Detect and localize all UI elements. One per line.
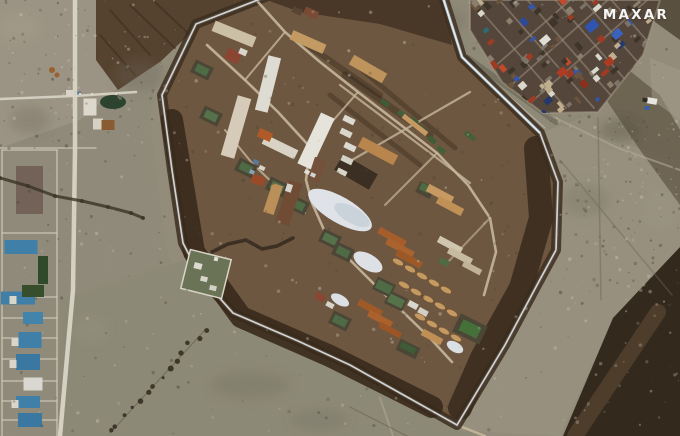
speckle — [271, 121, 273, 123]
speckle — [647, 173, 648, 174]
speckle — [30, 288, 32, 290]
speckle — [461, 151, 463, 153]
speckle — [114, 364, 116, 366]
speckle — [133, 155, 135, 157]
speckle — [338, 318, 340, 320]
speckle — [184, 216, 185, 217]
speckle — [429, 410, 433, 414]
speckle — [52, 141, 53, 142]
speckle — [428, 5, 431, 8]
tree — [150, 384, 155, 389]
speckle — [139, 12, 141, 14]
speckle — [8, 62, 10, 64]
speckle — [411, 43, 415, 47]
speckle — [282, 232, 284, 234]
speckle — [145, 40, 147, 42]
speckle — [601, 245, 604, 248]
speckle — [551, 154, 553, 156]
speckle — [107, 131, 109, 133]
speckle — [311, 10, 314, 13]
tree — [168, 365, 174, 371]
speckle — [663, 300, 665, 302]
speckle — [333, 244, 334, 245]
speckle — [565, 180, 567, 182]
speckle — [630, 193, 632, 195]
speckle — [278, 408, 280, 410]
speckle — [507, 124, 510, 127]
speckle — [659, 244, 662, 247]
speckle — [577, 21, 579, 23]
speckle — [607, 58, 609, 60]
speckle — [561, 63, 562, 64]
speckle — [38, 68, 41, 71]
speckle — [316, 103, 318, 105]
speckle — [378, 386, 380, 388]
speckle — [57, 2, 59, 4]
field-blotch — [600, 118, 640, 142]
speckle — [587, 405, 588, 406]
speckle — [287, 410, 291, 414]
speckle — [436, 127, 439, 130]
speckle — [113, 52, 115, 54]
speckle — [518, 94, 519, 95]
speckle — [77, 8, 78, 9]
speckle — [625, 180, 627, 182]
speckle — [235, 1, 236, 2]
speckle — [16, 201, 19, 204]
speckle — [598, 131, 600, 133]
speckle — [302, 87, 304, 89]
barn — [16, 396, 40, 408]
speckle — [541, 4, 543, 6]
speckle — [611, 139, 613, 141]
speckle — [341, 403, 344, 406]
speckle — [550, 242, 552, 244]
speckle — [179, 143, 181, 145]
speckle — [125, 320, 128, 323]
speckle — [406, 290, 408, 292]
speckle — [549, 62, 551, 64]
speckle — [523, 193, 525, 195]
bush — [106, 205, 110, 209]
speckle — [161, 66, 163, 68]
speckle — [249, 147, 251, 149]
speckle — [629, 153, 631, 155]
speckle — [425, 93, 426, 94]
speckle — [653, 64, 655, 66]
speckle — [199, 232, 201, 234]
speckle — [39, 9, 42, 12]
speckle — [576, 286, 577, 287]
speckle — [639, 192, 640, 193]
speckle — [643, 284, 646, 287]
speckle — [104, 160, 106, 162]
speckle — [316, 185, 318, 187]
speckle — [309, 142, 311, 144]
speckle — [18, 93, 20, 95]
speckle — [391, 340, 394, 343]
speckle — [362, 223, 363, 224]
speckle — [593, 167, 595, 169]
speckle — [658, 173, 660, 175]
speckle — [66, 163, 68, 165]
tree — [185, 341, 190, 346]
speckle — [50, 169, 51, 170]
speckle — [372, 328, 376, 332]
speckle — [78, 230, 81, 233]
speckle — [86, 317, 89, 320]
speckle — [418, 196, 420, 198]
speckle — [175, 29, 176, 30]
speckle — [134, 37, 137, 40]
speckle — [23, 41, 26, 44]
speckle — [328, 197, 329, 198]
speckle — [504, 230, 506, 232]
speckle — [467, 134, 469, 136]
speckle — [170, 359, 173, 362]
speckle — [656, 194, 657, 195]
speckle — [77, 86, 80, 89]
speckle — [10, 40, 11, 41]
speckle — [104, 1, 105, 2]
bush — [80, 199, 84, 203]
speckle — [384, 69, 386, 71]
speckle — [75, 35, 76, 36]
speckle — [492, 270, 495, 273]
speckle — [641, 186, 643, 188]
speckle — [58, 139, 60, 141]
speckle — [357, 78, 359, 80]
speckle — [497, 98, 499, 100]
speckle — [295, 282, 297, 284]
speckle — [633, 34, 636, 37]
speckle — [599, 362, 602, 365]
speckle — [129, 275, 131, 277]
speckle — [500, 111, 503, 114]
speckle — [408, 173, 409, 174]
speckle — [575, 66, 577, 68]
speckle — [580, 255, 583, 258]
speckle — [68, 86, 71, 89]
speckle — [487, 428, 491, 432]
speckle — [474, 227, 475, 228]
speckle — [494, 100, 497, 103]
speckle — [71, 106, 73, 108]
satellite-image: MAXAR — [0, 0, 680, 436]
speckle — [221, 304, 224, 307]
speckle — [24, 73, 25, 74]
speckle — [57, 238, 59, 240]
speckle — [90, 215, 93, 218]
speckle — [403, 313, 406, 316]
speckle — [138, 36, 140, 38]
speckle — [85, 102, 88, 105]
speckle — [672, 128, 674, 130]
speckle — [65, 144, 68, 147]
speckle — [602, 320, 603, 321]
speckle — [187, 381, 189, 383]
barn — [23, 312, 43, 324]
speckle — [677, 227, 679, 229]
speckle — [493, 377, 496, 380]
tree — [146, 390, 151, 395]
speckle — [250, 23, 253, 26]
speckle — [264, 264, 267, 267]
speckle — [603, 250, 605, 252]
speckle — [632, 239, 635, 242]
speckle — [548, 7, 550, 9]
speckle — [489, 282, 491, 284]
speckle — [625, 342, 627, 344]
speckle — [281, 237, 284, 240]
speckle — [670, 303, 672, 305]
speckle — [668, 157, 670, 159]
speckle — [448, 273, 449, 274]
speckle — [152, 333, 154, 335]
speckle — [622, 126, 623, 127]
speckle — [117, 61, 120, 64]
speckle — [41, 425, 44, 428]
speckle — [81, 136, 83, 138]
speckle — [414, 428, 415, 429]
speckle — [53, 98, 54, 99]
speckle — [580, 134, 583, 137]
tree — [138, 398, 144, 404]
speckle — [160, 296, 162, 298]
speckle — [647, 275, 650, 278]
speckle — [585, 320, 588, 323]
tree — [131, 406, 134, 409]
speckle — [588, 206, 590, 208]
speckle — [123, 346, 125, 348]
speckle — [242, 60, 243, 61]
speckle — [95, 232, 98, 235]
speckle — [583, 215, 584, 216]
speckle — [338, 11, 340, 13]
speckle — [287, 102, 290, 105]
speckle — [191, 150, 194, 153]
speckle — [54, 53, 56, 55]
speckle — [605, 253, 607, 255]
barn-annex — [10, 360, 17, 368]
speckle — [592, 278, 595, 281]
speckle — [482, 104, 485, 107]
speckle — [559, 214, 561, 216]
speckle — [278, 220, 281, 223]
speckle — [421, 295, 425, 299]
speckle — [555, 117, 558, 120]
speckle — [68, 24, 70, 26]
speckle — [77, 131, 80, 134]
speckle — [490, 202, 493, 205]
speckle — [667, 304, 669, 306]
speckle — [293, 157, 295, 159]
speckle — [559, 161, 562, 164]
speckle — [459, 263, 462, 266]
speckle — [566, 268, 568, 270]
speckle — [369, 10, 373, 14]
speckle — [669, 332, 671, 334]
speckle — [567, 336, 568, 337]
speckle — [390, 385, 392, 387]
speckle — [489, 215, 491, 217]
speckle — [372, 332, 373, 333]
speckle — [557, 234, 558, 235]
speckle — [578, 120, 581, 123]
speckle — [395, 397, 398, 400]
speckle — [628, 157, 631, 160]
speckle — [260, 325, 261, 326]
speckle — [151, 118, 154, 121]
bush — [141, 216, 145, 220]
speckle — [7, 432, 8, 433]
speckle — [127, 108, 130, 111]
speckle — [298, 85, 301, 88]
speckle — [185, 106, 188, 109]
speckle — [631, 131, 633, 133]
speckle — [551, 281, 552, 282]
bush — [53, 194, 57, 198]
speckle — [667, 127, 669, 129]
dirt-pile — [49, 67, 55, 73]
speckle — [277, 262, 278, 263]
speckle — [306, 196, 309, 199]
speckle — [67, 78, 70, 81]
speckle — [249, 197, 251, 199]
speckle — [264, 75, 267, 78]
speckle — [502, 233, 504, 235]
speckle — [565, 35, 566, 36]
speckle — [62, 93, 65, 96]
speckle — [45, 54, 47, 56]
speckle — [192, 315, 195, 318]
barn — [38, 256, 48, 284]
speckle — [594, 242, 597, 245]
speckle — [277, 289, 281, 293]
speckle — [138, 126, 140, 128]
speckle — [632, 280, 634, 282]
field-blotch — [72, 318, 108, 342]
vehicle — [642, 98, 648, 103]
speckle — [657, 273, 658, 274]
speckle — [402, 307, 404, 309]
speckle — [658, 134, 661, 137]
speckle — [164, 301, 167, 304]
field-blotch — [10, 106, 50, 134]
speckle — [21, 79, 24, 82]
speckle — [31, 275, 32, 276]
speckle — [3, 120, 4, 121]
speckle — [495, 12, 499, 16]
speckle — [459, 366, 462, 369]
speckle — [242, 400, 244, 402]
speckle — [603, 411, 605, 413]
barn-annex — [10, 296, 17, 304]
speckle — [347, 49, 350, 52]
speckle — [571, 296, 574, 299]
speckle — [539, 56, 541, 58]
speckle — [572, 0, 573, 1]
speckle — [581, 302, 584, 305]
speckle — [545, 234, 546, 235]
speckle — [125, 69, 128, 72]
speckle — [19, 13, 22, 16]
speckle — [365, 388, 368, 391]
speckle — [96, 419, 99, 422]
speckle — [472, 130, 473, 131]
tree — [204, 328, 209, 333]
speckle — [177, 386, 180, 389]
speckle — [21, 33, 24, 36]
speckle — [344, 422, 347, 425]
speckle — [55, 36, 57, 38]
speckle — [584, 409, 586, 411]
speckle — [173, 433, 175, 435]
speckle — [266, 355, 267, 356]
speckle — [554, 346, 557, 349]
speckle — [562, 278, 563, 279]
speckle — [330, 325, 331, 326]
speckle — [672, 211, 675, 214]
speckle — [372, 424, 375, 427]
speckle — [614, 364, 617, 367]
speckle — [658, 416, 660, 418]
speckle — [661, 193, 664, 196]
speckle — [426, 344, 428, 346]
speckle — [373, 385, 376, 388]
speckle — [653, 314, 656, 317]
speckle — [107, 62, 110, 65]
speckle — [595, 373, 598, 376]
speckle — [670, 178, 672, 180]
speckle — [182, 29, 183, 30]
speckle — [41, 250, 44, 253]
speckle — [556, 249, 558, 251]
speckle — [369, 72, 372, 75]
speckle — [407, 423, 409, 425]
barn — [19, 332, 42, 348]
speckle — [500, 415, 502, 417]
field-blotch — [644, 190, 676, 230]
speckle — [592, 136, 594, 138]
tree — [112, 424, 117, 429]
speckle — [71, 404, 72, 405]
speckle — [336, 333, 339, 336]
speckle — [492, 175, 494, 177]
speckle — [417, 260, 420, 263]
speckle — [109, 42, 110, 43]
maxar-watermark: MAXAR — [603, 7, 669, 23]
speckle — [96, 49, 99, 52]
speckle — [306, 337, 309, 340]
speckle — [247, 239, 249, 241]
speckle — [555, 162, 557, 164]
speckle — [127, 48, 130, 51]
speckle — [653, 249, 654, 250]
speckle — [588, 190, 590, 192]
speckle — [625, 298, 627, 300]
speckle — [507, 160, 509, 162]
speckle — [671, 123, 673, 125]
speckle — [478, 327, 481, 330]
speckle — [115, 1, 116, 2]
speckle — [11, 52, 13, 54]
speckle — [158, 232, 160, 234]
speckle — [577, 417, 578, 418]
speckle — [574, 302, 576, 304]
bush — [129, 211, 133, 215]
speckle — [419, 353, 421, 355]
